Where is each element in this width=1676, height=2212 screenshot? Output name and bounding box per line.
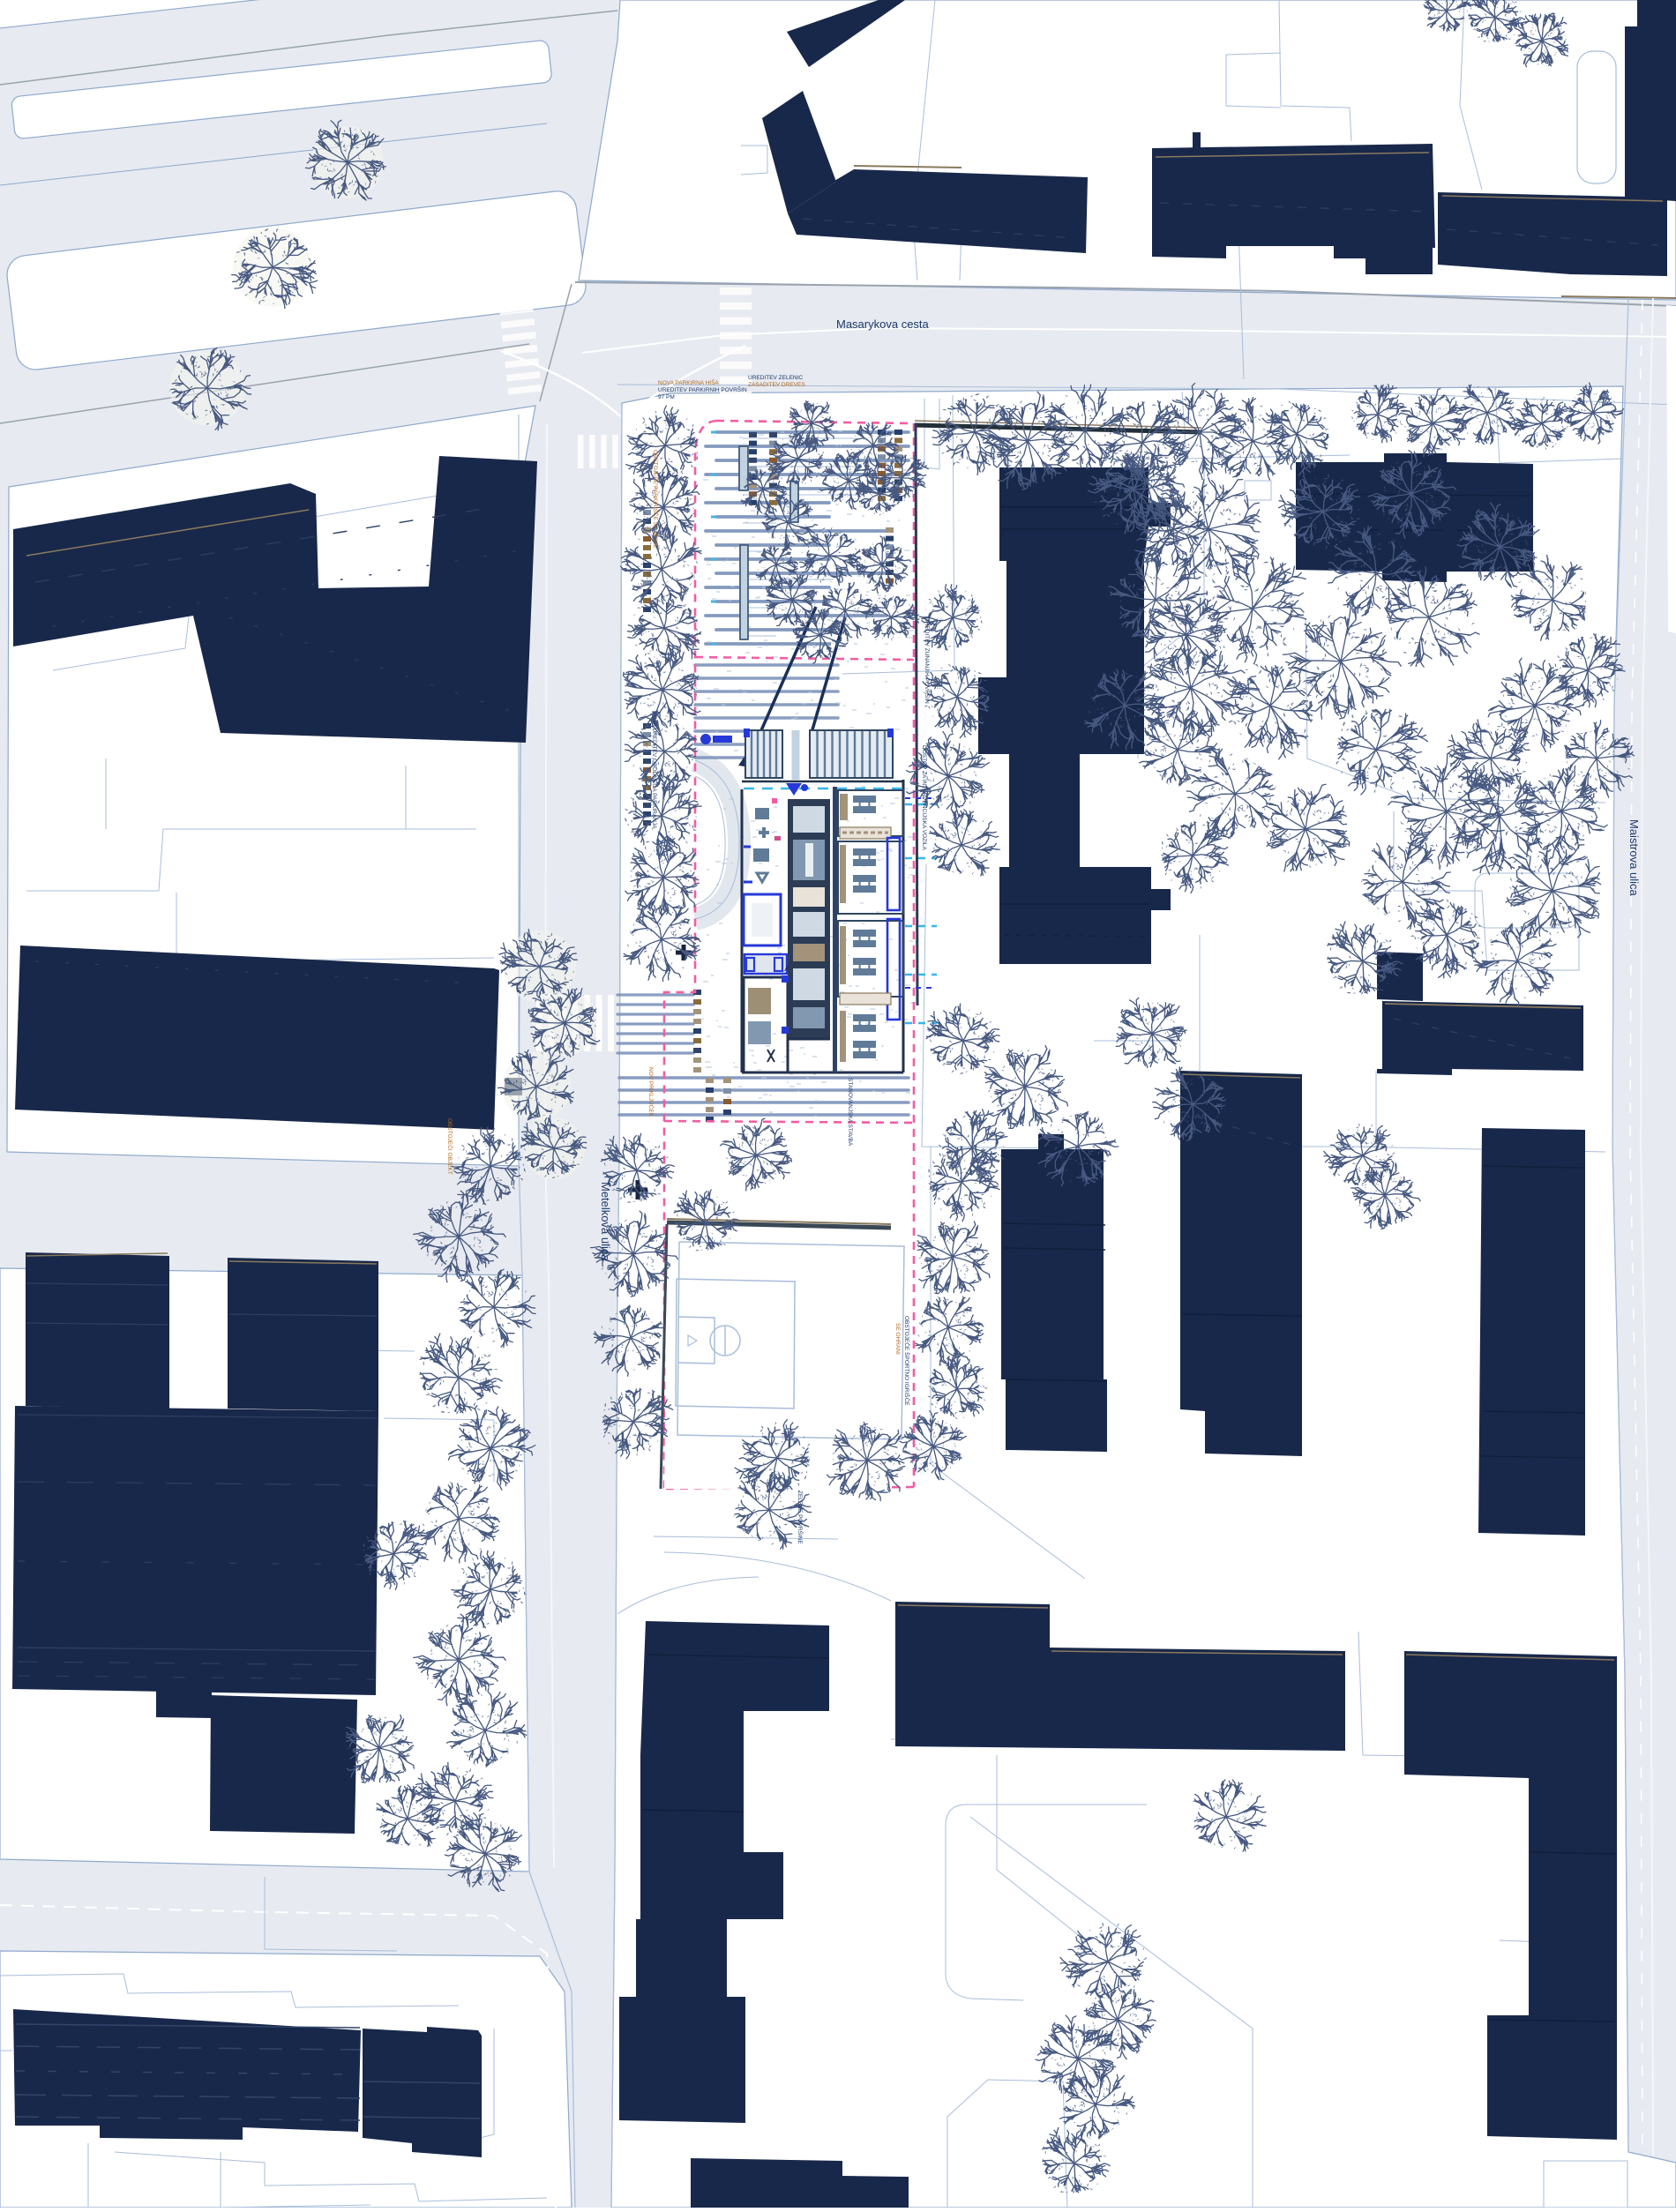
svg-text:Masarykova cesta: Masarykova cesta (836, 318, 930, 331)
svg-text:OBSTOJEČI OBJEKT: OBSTOJEČI OBJEKT (446, 1118, 454, 1175)
svg-text:UREDITEV ZELENIC: UREDITEV ZELENIC (748, 375, 803, 381)
svg-text:Maistrova ulica: Maistrova ulica (1627, 819, 1641, 896)
svg-text:UREDITEV PARKIRNIH POVRŠIN: UREDITEV PARKIRNIH POVRŠIN (658, 385, 747, 393)
svg-text:SE OHRANI: SE OHRANI (894, 1323, 901, 1355)
svg-text:DOSTOP ZA INTERVENCIJSKA VOZIL: DOSTOP ZA INTERVENCIJSKA VOZILA (921, 745, 927, 851)
svg-text:97 PM: 97 PM (658, 394, 675, 400)
svg-text:OBSTOJEČE PARKIRIŠČE SE UKINE: OBSTOJEČE PARKIRIŠČE SE UKINE (652, 450, 660, 549)
svg-text:ZASADITEV DREVES: ZASADITEV DREVES (748, 382, 805, 388)
svg-text:STANOVANJSKA STAVBA: STANOVANJSKA STAVBA (847, 1078, 853, 1147)
svg-text:NOVA UREDITEV OBODNEGA PARKIRA: NOVA UREDITEV OBODNEGA PARKIRANJA (651, 711, 657, 829)
svg-text:UREDITEV ZUNANJIH POVRŠIN: UREDITEV ZUNANJIH POVRŠIN (924, 617, 932, 704)
svg-text:OBSTOJEČE ŠPORTNO IGRIŠČE: OBSTOJEČE ŠPORTNO IGRIŠČE (903, 1316, 911, 1406)
svg-text:NOVA PARKIRNA HIŠA: NOVA PARKIRNA HIŠA (658, 378, 719, 386)
svg-text:NOV PRIKLJUČEK: NOV PRIKLJUČEK (647, 1067, 655, 1117)
svg-text:ZELENE POVRŠINE: ZELENE POVRŠINE (797, 1491, 804, 1544)
svg-text:Metelkova ulica: Metelkova ulica (599, 1182, 612, 1261)
